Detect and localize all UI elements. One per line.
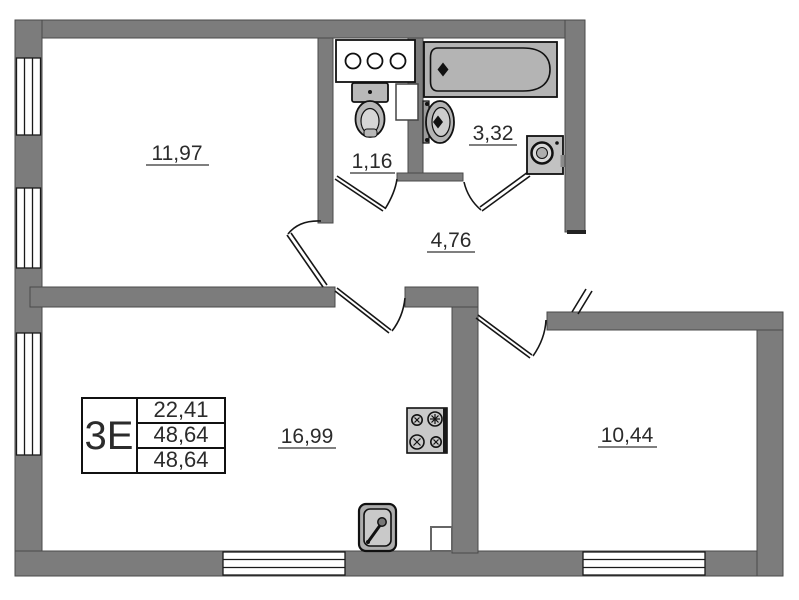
kitchen-sink: [359, 504, 396, 551]
window-kitchen-bottom: [223, 552, 345, 575]
wall-right: [757, 312, 783, 576]
window-living-upper: [17, 58, 41, 135]
floor-plan-page: 11,97 1,16 3,32 4,76 16,99 10,44 3E 22,4…: [0, 0, 799, 600]
wall-bedroom-top: [547, 312, 783, 330]
floor-plan: 11,97 1,16 3,32 4,76 16,99 10,44 3E 22,4…: [0, 0, 799, 600]
door-living-to-hall: [287, 221, 327, 287]
wall-hall-bottom-left: [30, 287, 335, 307]
wall-bath-right: [565, 20, 585, 232]
label-kitchen-area: 16,99: [281, 425, 334, 448]
wall-kitchen-divider: [452, 307, 478, 553]
unit-room-area: 22,41: [153, 397, 208, 422]
unit-info-table: 3E 22,41 48,64 48,64: [82, 397, 225, 473]
wc-duct-niche: [396, 84, 418, 120]
vanity-counter: [336, 40, 415, 82]
unit-total-area: 48,64: [153, 422, 208, 447]
door-wc: [335, 176, 397, 211]
window-kitchen-left: [17, 333, 41, 455]
basin-circle: [346, 54, 361, 69]
stove: [407, 408, 447, 453]
wall-hall-bottom-right: [405, 287, 478, 307]
door-swing-arc: [392, 298, 405, 331]
door-swing-arc: [464, 182, 481, 210]
wall-wc-bath-bottom: [397, 173, 463, 181]
toilet: [352, 83, 388, 137]
entrance-door-mark: [572, 289, 592, 314]
label-hallway-area: 4,76: [431, 229, 472, 252]
wall-living-right: [318, 38, 333, 223]
kitchen-duct-niche: [431, 527, 452, 551]
unit-full-area: 48,64: [153, 447, 208, 472]
label-living-area: 11,97: [152, 142, 203, 165]
door-swing-arc: [385, 179, 397, 209]
door-bathroom: [464, 172, 530, 211]
label-bathroom-area: 3,32: [473, 122, 514, 145]
door-swing-arc: [533, 320, 546, 356]
unit-label: 3E: [85, 414, 134, 458]
bathroom-sink: [423, 101, 454, 143]
entrance-threshold-mark: [567, 230, 586, 234]
door-kitchen: [335, 288, 405, 333]
label-wc-area: 1,16: [352, 150, 393, 173]
window-bedroom-bottom: [583, 552, 705, 575]
door-bedroom: [476, 315, 546, 358]
basin-circle: [368, 54, 383, 69]
wall-top: [15, 20, 585, 38]
basin-circle: [391, 54, 406, 69]
washing-machine: [527, 136, 565, 174]
bathtub: [424, 42, 557, 97]
door-swing-arc: [288, 221, 321, 234]
label-bedroom-area: 10,44: [601, 424, 654, 447]
window-living-lower: [17, 188, 41, 268]
